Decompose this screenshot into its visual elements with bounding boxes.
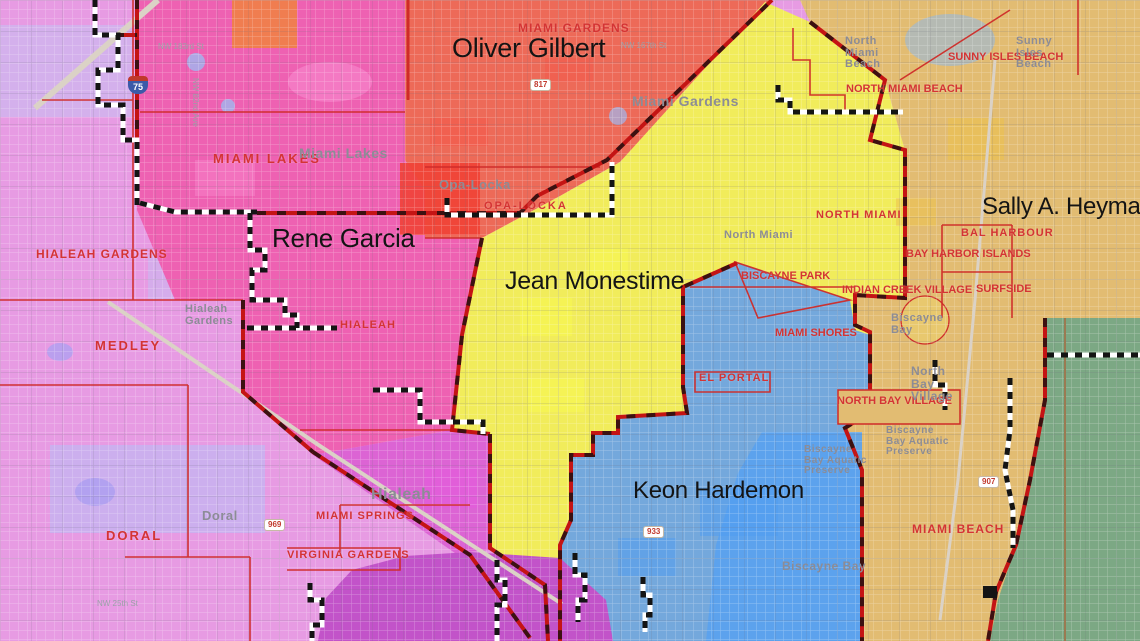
street-grid-coarse <box>0 0 1140 641</box>
map-graphic <box>0 0 1140 641</box>
region-north-bay-village <box>838 390 960 424</box>
district-map-canvas[interactable]: Oliver GilbertRene GarciaJean MonestimeK… <box>0 0 1140 641</box>
boundary-marker <box>983 586 997 598</box>
